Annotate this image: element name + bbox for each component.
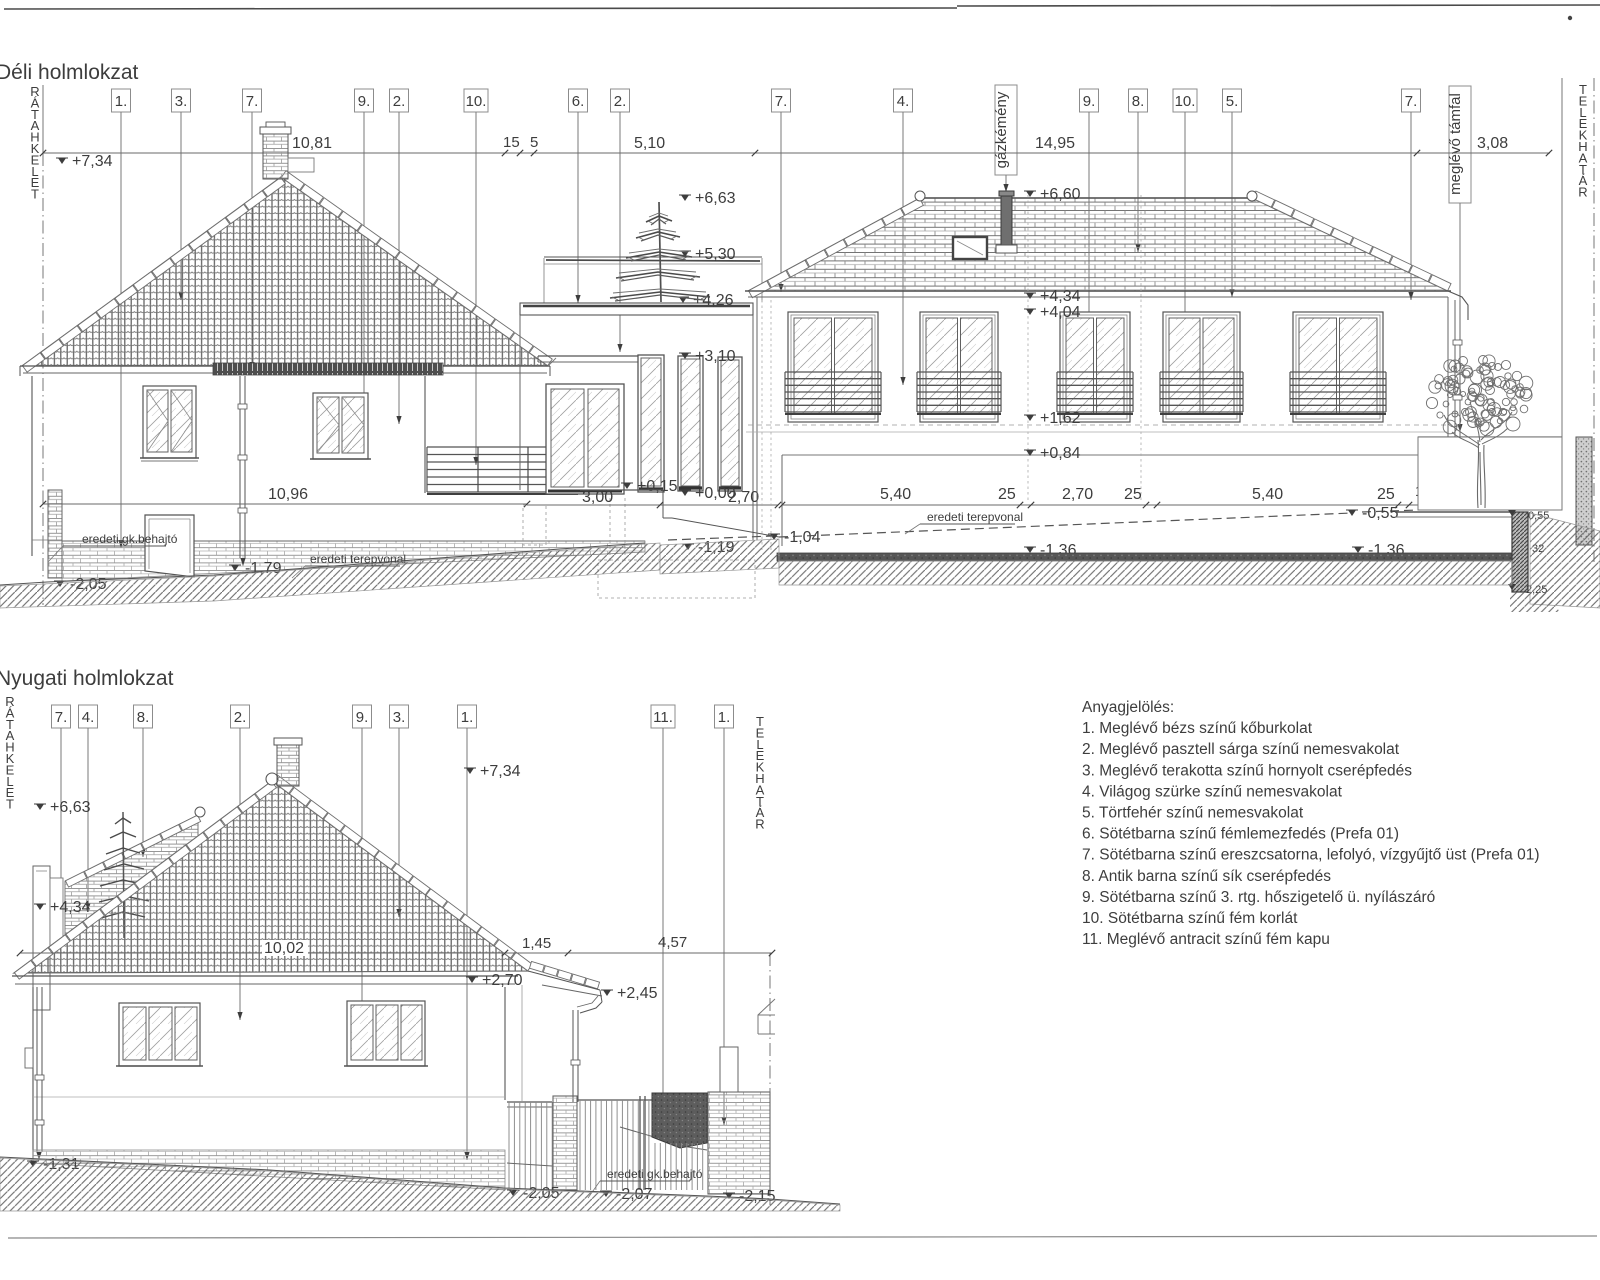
svg-text:+6,63: +6,63 xyxy=(695,190,736,207)
svg-text:10. Sötétbarna színű fém korlá: 10. Sötétbarna színű fém korlát xyxy=(1082,910,1298,927)
svg-text:+7,34: +7,34 xyxy=(480,763,521,780)
svg-text:+5,30: +5,30 xyxy=(695,246,736,263)
svg-text:10.: 10. xyxy=(1175,93,1196,110)
svg-text:eredeti terepvonal: eredeti terepvonal xyxy=(927,510,1023,524)
svg-text:+4,04: +4,04 xyxy=(1040,304,1081,321)
svg-text:5,40: 5,40 xyxy=(1252,486,1283,503)
svg-text:+6,63: +6,63 xyxy=(50,799,91,816)
svg-text:11. Meglévő antracit színű fém: 11. Meglévő antracit színű fém kapu xyxy=(1082,931,1330,948)
svg-text:10,02: 10,02 xyxy=(264,940,304,957)
svg-text:5.: 5. xyxy=(1226,93,1239,110)
svg-text:+0,84: +0,84 xyxy=(1040,445,1081,462)
svg-text:9.: 9. xyxy=(1083,93,1096,110)
svg-text:6.: 6. xyxy=(572,93,585,110)
svg-text:eredeti gk.behajtó: eredeti gk.behajtó xyxy=(82,532,178,546)
svg-text:9.: 9. xyxy=(358,93,371,110)
svg-text:4.: 4. xyxy=(897,93,910,110)
svg-text:7.: 7. xyxy=(1405,93,1418,110)
svg-text:eredeti gk.behajtó: eredeti gk.behajtó xyxy=(607,1167,703,1181)
svg-text:3,00: 3,00 xyxy=(582,489,613,506)
svg-text:10,81: 10,81 xyxy=(292,135,332,152)
svg-text:25: 25 xyxy=(998,486,1016,503)
svg-text:+4,26: +4,26 xyxy=(693,292,734,309)
svg-text:7. Sötétbarna színű ereszcsato: 7. Sötétbarna színű ereszcsatorna, lefol… xyxy=(1082,847,1540,864)
svg-text:1.: 1. xyxy=(718,709,731,726)
svg-text:2.: 2. xyxy=(393,93,406,110)
svg-text:9.: 9. xyxy=(356,709,369,726)
svg-text:9. Sötétbarna színű 3. rtg. hő: 9. Sötétbarna színű 3. rtg. hőszigetelő … xyxy=(1082,889,1435,906)
svg-text:2,70: 2,70 xyxy=(728,489,759,506)
svg-text:8.: 8. xyxy=(137,709,150,726)
svg-text:11.: 11. xyxy=(653,709,673,726)
svg-text:6. Sötétbarna színű fémlemezfe: 6. Sötétbarna színű fémlemezfedés (Prefa… xyxy=(1082,826,1399,843)
svg-text:Anyagjelölés:: Anyagjelölés: xyxy=(1082,699,1174,716)
svg-text:10,96: 10,96 xyxy=(268,486,308,503)
svg-text:8. Antik barna színű sík cseré: 8. Antik barna színű sík cserépfedés xyxy=(1082,868,1331,885)
svg-text:R: R xyxy=(755,817,764,832)
svg-text:7.: 7. xyxy=(246,93,259,110)
svg-text:+4,34: +4,34 xyxy=(50,899,91,916)
svg-text:-0,55: -0,55 xyxy=(1362,505,1399,522)
svg-text:+1,62: +1,62 xyxy=(1040,410,1081,427)
svg-text:4. Világog szürke színű nemesv: 4. Világog szürke színű nemesvakolat xyxy=(1082,783,1343,800)
svg-text:14,95: 14,95 xyxy=(1035,135,1075,152)
svg-text:T: T xyxy=(31,187,39,202)
svg-text:Nyugati holmlokzat: Nyugati holmlokzat xyxy=(0,667,174,690)
svg-text:4,57: 4,57 xyxy=(658,934,687,951)
svg-text:25: 25 xyxy=(1377,486,1395,503)
svg-text:2,70: 2,70 xyxy=(1062,486,1093,503)
svg-text:+2,45: +2,45 xyxy=(617,985,658,1002)
svg-text:T: T xyxy=(6,797,14,812)
svg-text:5,40: 5,40 xyxy=(880,486,911,503)
svg-text:+3,10: +3,10 xyxy=(695,348,736,365)
svg-text:3.: 3. xyxy=(393,709,406,726)
svg-text:1,45: 1,45 xyxy=(522,935,551,952)
svg-text:1.: 1. xyxy=(115,93,128,110)
svg-text:Déli holmlokzat: Déli holmlokzat xyxy=(0,61,139,84)
svg-text:25: 25 xyxy=(1124,486,1142,503)
svg-text:+2,70: +2,70 xyxy=(482,972,523,989)
svg-text:3. Meglévő terakotta színű hor: 3. Meglévő terakotta színű hornyolt cser… xyxy=(1082,762,1412,779)
svg-text:1.: 1. xyxy=(461,709,474,726)
svg-text:4.: 4. xyxy=(82,709,95,726)
svg-text:1. Meglévő bézs színű kőburkol: 1. Meglévő bézs színű kőburkolat xyxy=(1082,720,1313,737)
svg-text:+0,15: +0,15 xyxy=(637,478,678,495)
svg-text:3,08: 3,08 xyxy=(1477,135,1508,152)
svg-text:2.: 2. xyxy=(234,709,247,726)
svg-text:+7,34: +7,34 xyxy=(72,153,113,170)
svg-text:7.: 7. xyxy=(55,709,68,726)
svg-text:5,10: 5,10 xyxy=(634,135,665,152)
svg-text:+6,60: +6,60 xyxy=(1040,186,1081,203)
svg-text:gázkémény: gázkémény xyxy=(993,91,1010,168)
svg-text:10.: 10. xyxy=(466,93,487,110)
svg-text:2. Meglévő pasztell sárga szín: 2. Meglévő pasztell sárga színű nemesvak… xyxy=(1082,741,1400,758)
svg-text:meglévő támfal: meglévő támfal xyxy=(1447,93,1464,195)
svg-text:-1,04: -1,04 xyxy=(784,529,821,546)
svg-text:5. Törtfehér színű nemesvakola: 5. Törtfehér színű nemesvakolat xyxy=(1082,805,1304,822)
svg-text:7.: 7. xyxy=(775,93,788,110)
svg-text:3.: 3. xyxy=(175,93,188,110)
svg-text:R: R xyxy=(1578,185,1587,200)
svg-text:2.: 2. xyxy=(614,93,627,110)
svg-text:15: 15 xyxy=(503,134,520,151)
svg-text:+4,34: +4,34 xyxy=(1040,288,1081,305)
svg-text:5: 5 xyxy=(530,134,538,151)
svg-text:8.: 8. xyxy=(1132,93,1145,110)
